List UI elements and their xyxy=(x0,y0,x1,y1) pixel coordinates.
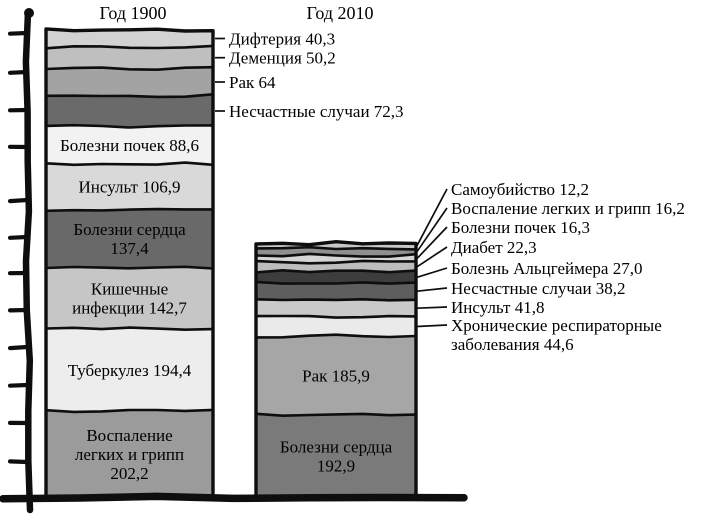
segment-inside-label: Воспаление xyxy=(86,426,172,445)
segment-inside-label: Болезни сердца xyxy=(280,438,393,457)
leader-line xyxy=(417,307,447,308)
segment-inside-label: Болезни почек 88,6 xyxy=(60,136,199,155)
y-axis-tick xyxy=(10,347,27,348)
leader-line xyxy=(417,288,447,291)
leader-line xyxy=(417,325,447,327)
segment-leader-label: Рак 64 xyxy=(229,73,276,92)
segment-inside-label: 137,4 xyxy=(110,239,149,258)
segment-inside-label: 192,9 xyxy=(317,457,355,476)
leader-line xyxy=(417,189,447,246)
segment-leader-label: Воспаление легких и грипп 16,2 xyxy=(451,199,685,218)
bar-title-1900: Год 1900 xyxy=(100,3,167,23)
y-axis-tick xyxy=(10,200,27,201)
segment-leader-label: Дифтерия 40,3 xyxy=(229,30,335,49)
y-axis-top-dot xyxy=(24,8,34,18)
segment-leader-label: Болезни почек 16,3 xyxy=(451,218,590,237)
bar-segment xyxy=(46,46,213,70)
bar-segment xyxy=(46,67,213,97)
segment-leader-label: Деменция 50,2 xyxy=(229,49,336,68)
segment-leader-label: заболевания 44,6 xyxy=(451,335,574,354)
y-axis-tick xyxy=(10,72,27,73)
leader-line xyxy=(417,247,447,267)
bar-title-2010: Год 2010 xyxy=(307,3,374,23)
y-axis-tick xyxy=(10,33,27,34)
segment-leader-label: Болезнь Альцгеймера 27,0 xyxy=(451,259,642,278)
leader-line xyxy=(417,208,447,252)
bar-segment xyxy=(46,94,213,127)
segment-inside-label: инфекции 142,7 xyxy=(72,299,187,318)
segment-inside-label: легких и грипп xyxy=(75,445,184,464)
figure-canvas: Дифтерия 40,3Деменция 50,2Рак 64Несчастн… xyxy=(0,0,716,521)
segment-leader-label: Диабет 22,3 xyxy=(451,238,537,257)
y-axis-tick xyxy=(10,461,27,462)
segment-inside-label: Кишечные xyxy=(91,280,168,299)
segment-inside-label: Болезни сердца xyxy=(73,220,186,239)
segment-inside-label: Туберкулез 194,4 xyxy=(68,361,192,380)
leader-line xyxy=(417,268,447,277)
segment-divider-line xyxy=(256,299,416,300)
segment-inside-label: 202,2 xyxy=(110,464,148,483)
segment-leader-label: Самоубийство 12,2 xyxy=(451,180,589,199)
segment-leader-label: Несчастные случаи 38,2 xyxy=(451,279,626,298)
segment-leader-label: Инсульт 41,8 xyxy=(451,298,544,317)
stacked-bar-chart: Дифтерия 40,3Деменция 50,2Рак 64Несчастн… xyxy=(0,0,716,521)
segment-leader-label: Несчастные случаи 72,3 xyxy=(229,102,404,121)
x-axis-line xyxy=(3,496,464,498)
leader-line xyxy=(417,227,447,259)
segment-divider-line xyxy=(46,267,213,269)
y-axis-tick xyxy=(10,385,27,386)
segment-divider-line xyxy=(46,209,213,211)
segment-inside-label: Инсульт 106,9 xyxy=(79,178,181,197)
segment-leader-label: Хронические респираторные xyxy=(451,316,662,335)
y-axis-line xyxy=(26,12,30,510)
y-axis-tick xyxy=(10,237,27,238)
segment-inside-label: Рак 185,9 xyxy=(302,367,370,386)
